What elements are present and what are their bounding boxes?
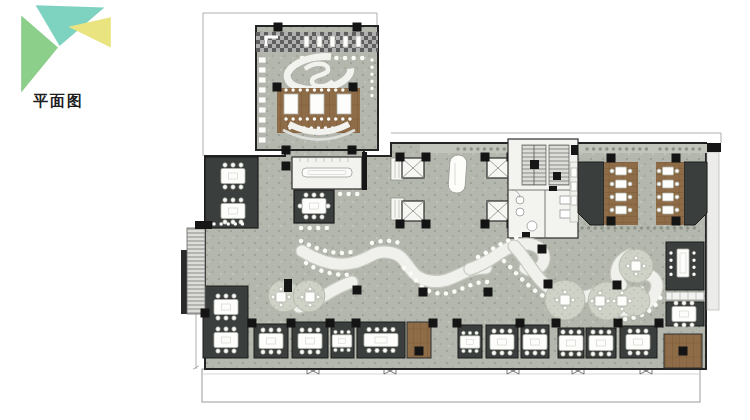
entry-wall-stub: [195, 221, 212, 229]
elevator-icon: [487, 158, 509, 178]
dining-table: [298, 328, 322, 354]
column: [274, 23, 283, 32]
stair-landing: [530, 160, 539, 169]
elevator-icon: [402, 158, 424, 178]
elevator-icon: [487, 201, 509, 221]
column: [607, 217, 616, 226]
column: [453, 319, 462, 328]
column: [655, 319, 664, 328]
dining-table: [672, 301, 696, 327]
dark-block-west: [578, 162, 604, 225]
column: [273, 83, 282, 92]
entry-wall-bar: [181, 250, 187, 314]
column: [201, 309, 210, 318]
dark-block-east: [684, 162, 707, 225]
column: [326, 319, 335, 328]
banquet-room-north: [256, 23, 378, 151]
column: [544, 280, 553, 289]
column: [415, 347, 424, 356]
wall-chunk: [549, 186, 557, 191]
column: [349, 83, 358, 92]
dining-table: [332, 330, 352, 352]
servery-room: [292, 152, 367, 190]
server-station: [571, 182, 577, 191]
servery-east-wall: [362, 152, 367, 190]
column: [353, 286, 362, 295]
west-banquette-seats: [259, 57, 267, 143]
column: [287, 319, 296, 328]
service-core: [508, 139, 578, 238]
column: [607, 154, 616, 163]
column: [284, 279, 292, 292]
column: [481, 153, 490, 162]
page: 平面图: [0, 0, 750, 420]
column: [352, 319, 361, 328]
column: [282, 146, 291, 155]
column: [422, 220, 431, 229]
south-terrace: [202, 368, 700, 402]
elevator-icon: [402, 201, 424, 221]
dining-table: [221, 163, 245, 189]
column: [348, 146, 357, 155]
dining-table: [523, 329, 547, 355]
servery-counter: [302, 168, 352, 177]
dining-table: [259, 328, 283, 354]
column: [679, 347, 688, 356]
floor-plan: [0, 0, 750, 420]
column: [396, 220, 405, 229]
toilet-fixture: [516, 208, 524, 216]
server-station: [571, 168, 577, 177]
stair-landing: [553, 172, 561, 180]
column: [481, 220, 490, 229]
column: [552, 319, 561, 328]
column: [614, 319, 623, 328]
dining-table: [626, 329, 650, 355]
column: [613, 281, 622, 290]
column: [422, 153, 431, 162]
entry-steps: [187, 228, 205, 314]
dining-table: [460, 331, 480, 353]
column: [282, 162, 291, 171]
dining-table: [221, 198, 245, 224]
server-station: [571, 196, 577, 205]
reception-desk: [448, 154, 468, 193]
dining-table: [559, 330, 583, 356]
column: [396, 153, 405, 162]
column: [248, 319, 257, 328]
dining-table: [589, 330, 613, 356]
wall-chunk: [522, 232, 530, 238]
column: [672, 154, 681, 163]
east-balcony-strip: [707, 152, 719, 310]
column: [672, 217, 681, 226]
dining-table: [302, 193, 326, 219]
wall-chunk: [571, 145, 578, 155]
dining-table: [214, 327, 238, 353]
chair: [298, 204, 302, 208]
column: [419, 288, 428, 297]
dining-table: [490, 329, 514, 355]
chair: [326, 204, 330, 208]
vip-cluster-east: [664, 242, 704, 368]
sink-fixture: [527, 221, 537, 231]
column: [516, 319, 525, 328]
banquet-tables: [284, 94, 351, 114]
column: [353, 23, 362, 32]
column: [538, 245, 547, 254]
dining-table: [214, 294, 238, 320]
column: [429, 319, 438, 328]
column: [484, 288, 493, 297]
